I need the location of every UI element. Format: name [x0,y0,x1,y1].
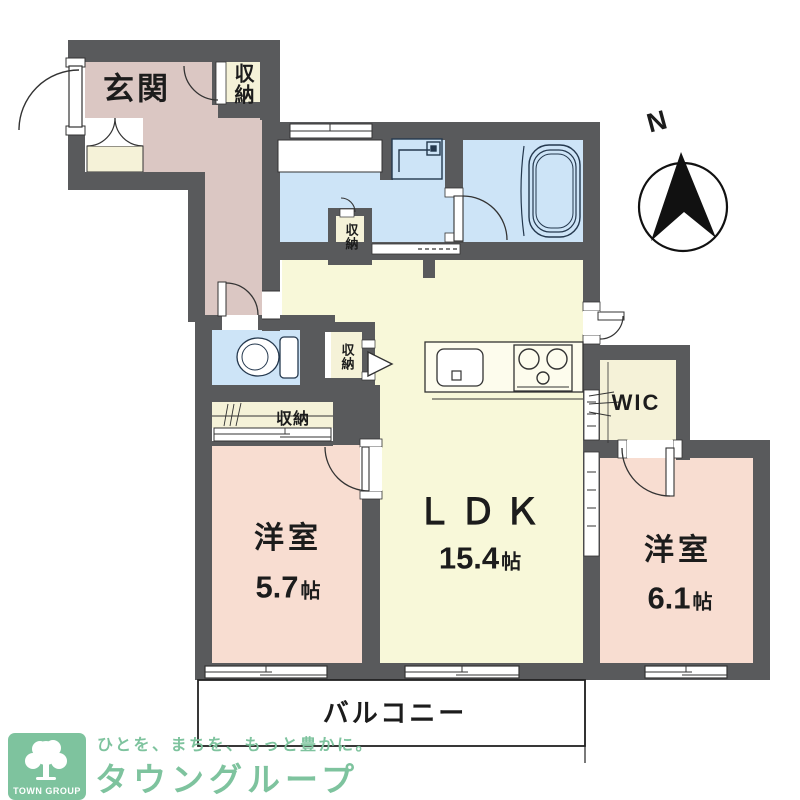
compass-needle [651,152,716,241]
ldk-size-value: 15.4 [439,543,499,574]
corridor-floor [205,118,265,315]
floorplan-page: 玄関 収納 収納 収納 収納 WIC ＬＤＫ 15.4帖 洋室 5.7帖 洋室 … [0,0,800,800]
compass [639,152,727,251]
bedroom-east-label: 洋室 [644,536,712,566]
bedroom-west-label: 洋室 [254,524,322,554]
wic-label: WIC [612,392,661,414]
bedroom-west-size-unit: 帖 [301,582,321,602]
washbasin-counter [278,140,382,172]
bathroom-door-leaf [454,196,463,241]
bedroom-west-size-value: 5.7 [255,572,298,603]
balcony-window-east [645,666,727,678]
bedroom-east-size-unit: 帖 [693,593,713,613]
toilet-fixture [237,337,298,378]
ldk-size: 15.4帖 [439,543,521,574]
washer-pan [392,139,442,179]
logo-company-name: タウングループ [95,753,359,800]
balcony-window-ldk [405,666,519,678]
washroom-storage-label: 収納 [345,223,358,251]
bedroom-east-size: 6.1帖 [647,583,712,614]
bedroom-east-size-value: 6.1 [647,583,690,614]
bedroom-west-size: 5.7帖 [255,572,320,603]
floorplan-drawing [0,0,800,800]
ldk-size-unit: 帖 [501,553,521,573]
toilet-side-storage-label: 収納 [341,343,354,371]
logo-caption: TOWN GROUP [13,786,81,796]
logo-tagline: ひとを、まちを、もっと豊かに。 [97,731,374,755]
kitchen-counter [425,342,583,399]
balcony-label: バルコニー [323,700,467,726]
ldk-label: ＬＤＫ [416,494,548,530]
shoe-cabinet [87,146,143,172]
balcony-window-west [205,666,327,678]
entrance-storage-label: 収納 [232,63,252,105]
front-door-leaf [69,66,82,127]
bedroom-storage-label: 収納 [276,412,310,428]
entrance-label: 玄関 [103,74,171,105]
